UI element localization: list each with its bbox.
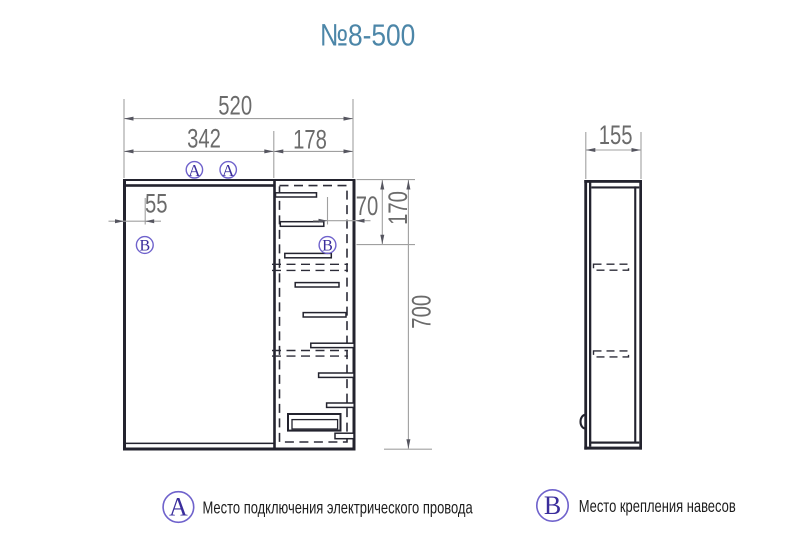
- svg-text:A: A: [188, 161, 201, 180]
- svg-text:170: 170: [383, 191, 414, 225]
- svg-text:Место крепления навесов: Место крепления навесов: [579, 497, 736, 517]
- svg-text:A: A: [222, 161, 235, 180]
- svg-text:70: 70: [356, 191, 379, 222]
- svg-text:B: B: [544, 491, 561, 520]
- svg-text:700: 700: [407, 295, 438, 329]
- svg-text:Место подключения электрическо: Место подключения электрического провода: [203, 499, 473, 519]
- svg-text:520: 520: [218, 91, 252, 122]
- svg-text:B: B: [139, 237, 150, 254]
- svg-text:178: 178: [293, 125, 327, 156]
- svg-text:A: A: [169, 493, 188, 522]
- svg-text:342: 342: [187, 124, 221, 155]
- svg-text:B: B: [322, 237, 333, 254]
- svg-text:155: 155: [599, 120, 633, 151]
- svg-text:55: 55: [145, 189, 168, 220]
- svg-text:№8-500: №8-500: [320, 19, 416, 53]
